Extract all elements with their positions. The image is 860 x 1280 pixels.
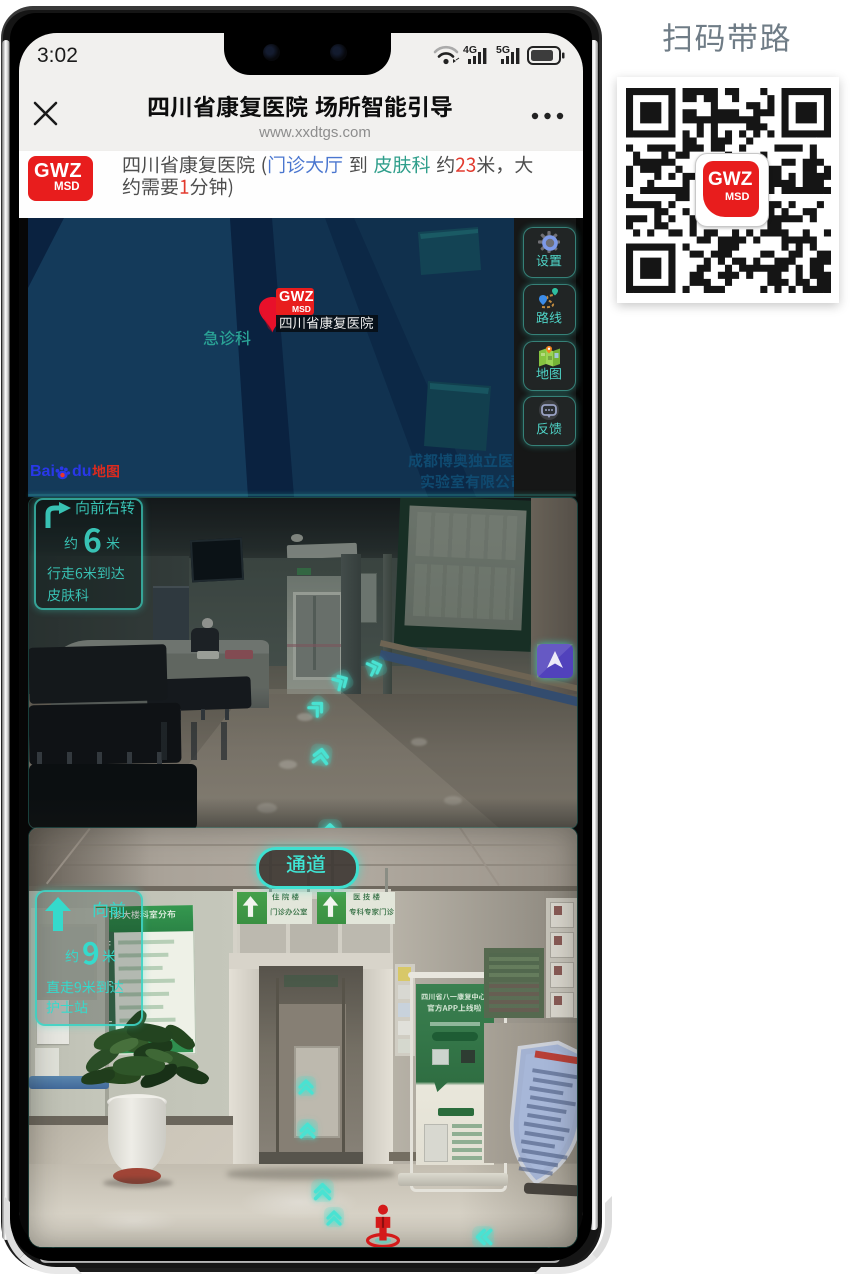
svg-text:4G: 4G [463, 44, 477, 56]
svg-text:5G: 5G [496, 44, 510, 56]
